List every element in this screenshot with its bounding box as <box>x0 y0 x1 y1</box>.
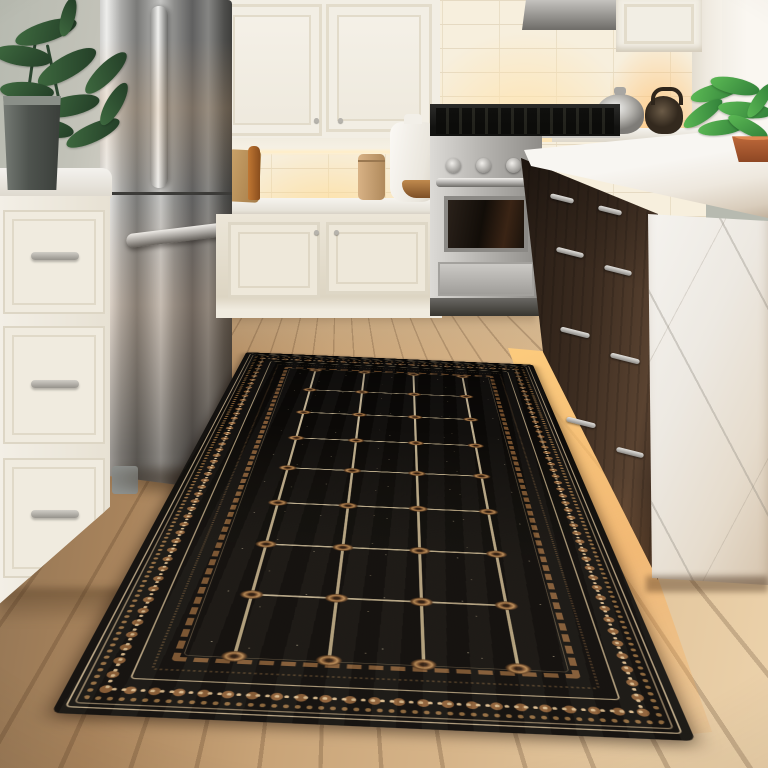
plant-leaf <box>0 42 53 70</box>
kitchen-photo <box>0 0 768 768</box>
rug-pile-sheen <box>51 352 695 741</box>
rug-perspective-wrapper <box>51 0 752 741</box>
runner-rug <box>51 352 695 741</box>
gray-plant-pot <box>0 96 64 190</box>
plant-leaf <box>56 0 80 38</box>
